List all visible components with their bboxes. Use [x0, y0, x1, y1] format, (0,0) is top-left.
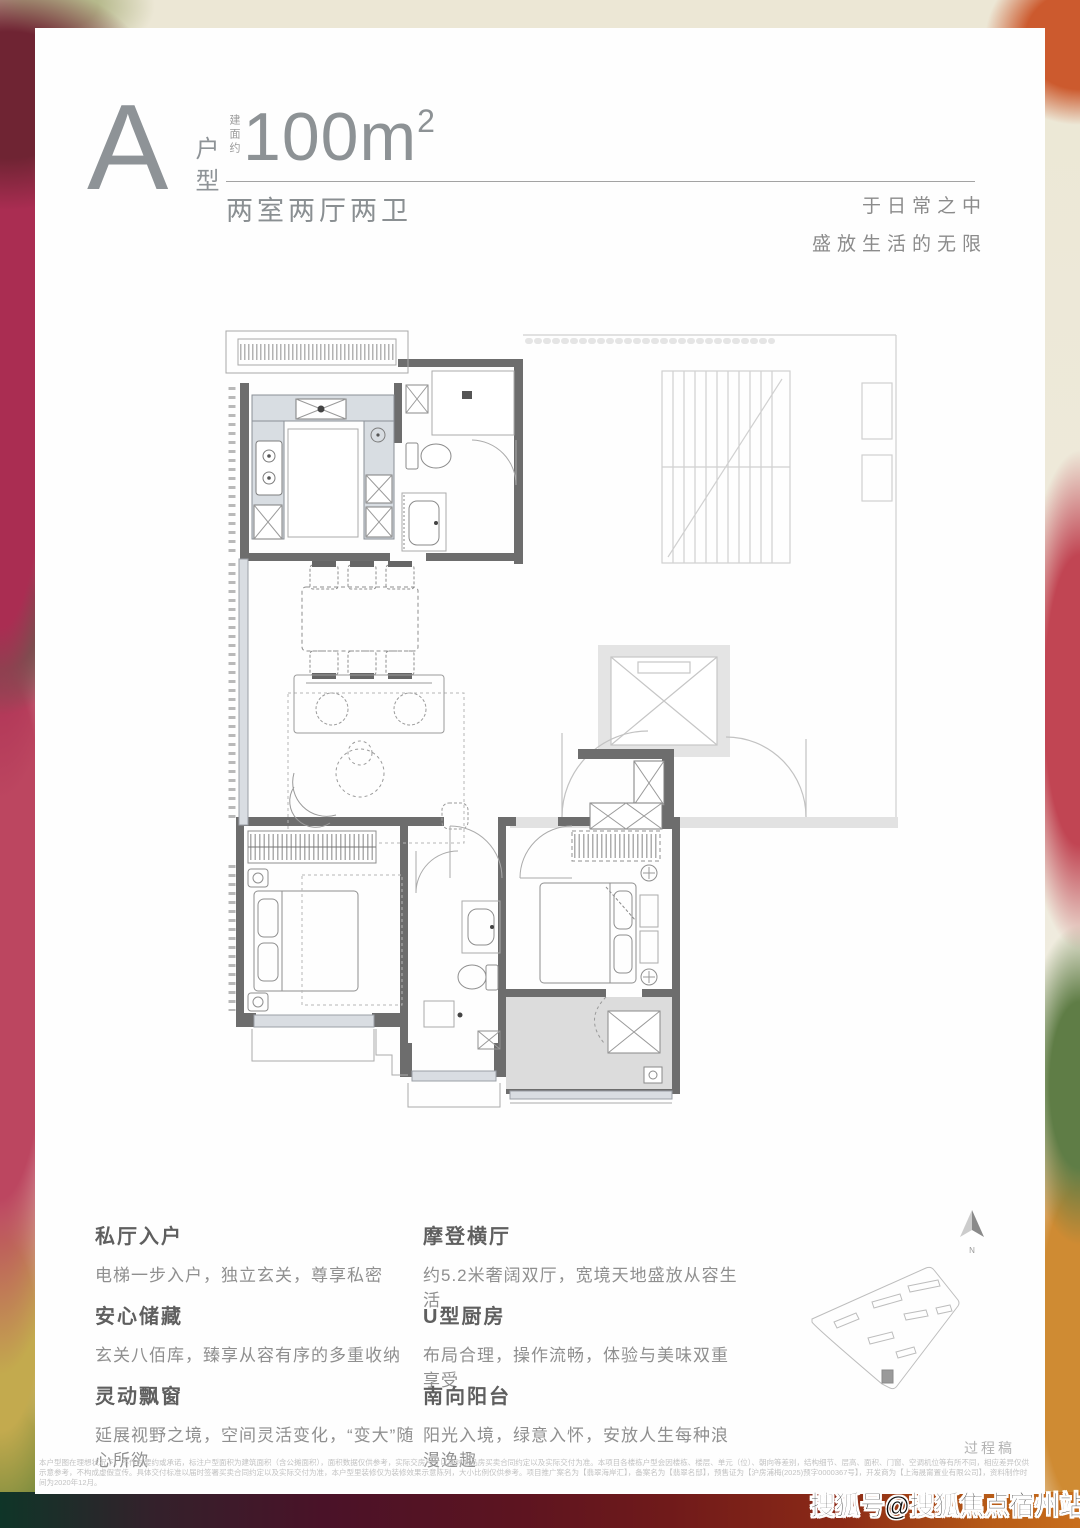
dining-chairs: [310, 561, 414, 679]
entry-bathroom: [406, 371, 516, 485]
sofa: [294, 675, 444, 733]
area-number: 100m: [243, 99, 417, 175]
toilet-tank: [406, 443, 418, 469]
unit-type-letter: A: [87, 86, 168, 208]
area-prefix-label: 建面约: [226, 114, 242, 156]
feature-title: 私厅入户: [95, 1220, 415, 1249]
toilet-bowl: [421, 444, 451, 468]
feature-living-hall: 摩登横厅 约5.2米奢阔双厅，宽境天地盛放从容生活: [423, 1220, 743, 1311]
bathroom: [416, 851, 500, 1049]
disclaimer-text: 本户型图在理想状况下，不作为要约或承诺，标注户型面积为建筑面积（含公摊面积），面…: [39, 1458, 1029, 1488]
armchair: [394, 693, 426, 725]
feature-title: 灵动飘窗: [95, 1380, 415, 1409]
slogan: 于日常之中 盛放生活的无限: [812, 188, 987, 264]
site-plan: [800, 1256, 980, 1408]
unit-type-label: 户型: [187, 136, 222, 200]
nightstand: [248, 993, 268, 1011]
bedside-cabinet: [640, 931, 658, 963]
slogan-line1: 于日常之中: [812, 188, 987, 226]
feature-title: 安心储藏: [95, 1300, 415, 1329]
area-value: 100m2: [243, 98, 436, 176]
feature-desc: 电梯一步入户，独立玄关，尊享私密: [95, 1261, 415, 1286]
bed: [254, 891, 358, 991]
area-exponent: 2: [417, 103, 436, 139]
feature-title: 南向阳台: [423, 1380, 743, 1409]
highlighted-building: [882, 1370, 893, 1383]
toilet-tank: [486, 965, 498, 990]
entry-storage: [590, 761, 664, 829]
armchair: [316, 693, 348, 725]
dining-set: [302, 561, 418, 679]
bedroom-left: [248, 826, 502, 1011]
feature-title: U型厨房: [423, 1300, 743, 1329]
poster-card: A 户型 建面约 100m2 两室两厅两卫 于日常之中 盛放生活的无限: [35, 28, 1045, 1494]
header-rule: [226, 181, 975, 182]
feature-storage: 安心储藏 玄关八佰库，臻享从容有序的多重收纳: [95, 1300, 415, 1366]
toilet-bowl: [458, 965, 486, 989]
kitchen-island: [288, 429, 358, 537]
room-layout-label: 两室两厅两卫: [226, 189, 412, 228]
watermark: 搜狐号@搜狐焦点宿州站: [810, 1485, 1080, 1524]
north-arrow-icon: [957, 1208, 987, 1240]
utility-box: [424, 1001, 454, 1027]
hall-vanity: [402, 493, 446, 551]
bed: [540, 883, 636, 983]
coffee-table: [336, 749, 384, 797]
feature-desc: 玄关八佰库，臻享从容有序的多重收纳: [95, 1341, 415, 1366]
feature-private-entry: 私厅入户 电梯一步入户，独立玄关，尊享私密: [95, 1220, 415, 1286]
slogan-line2: 盛放生活的无限: [812, 226, 987, 264]
feature-title: 摩登横厅: [423, 1220, 743, 1249]
draft-note: 过程稿: [964, 1438, 1015, 1458]
compass-n-label: N: [957, 1246, 987, 1255]
stove: [256, 441, 282, 495]
bedroom-right: [520, 826, 660, 985]
floor-plan: [210, 325, 910, 1125]
balcony: [506, 997, 672, 1089]
ac-louver-band: [226, 331, 408, 373]
nightstand: [248, 869, 268, 887]
compass: N: [957, 1208, 987, 1255]
bedside-cabinet: [640, 895, 658, 927]
feature-kitchen: U型厨房 布局合理，操作流畅，体验与美味双重享受: [423, 1300, 743, 1391]
common-area: [510, 335, 898, 828]
